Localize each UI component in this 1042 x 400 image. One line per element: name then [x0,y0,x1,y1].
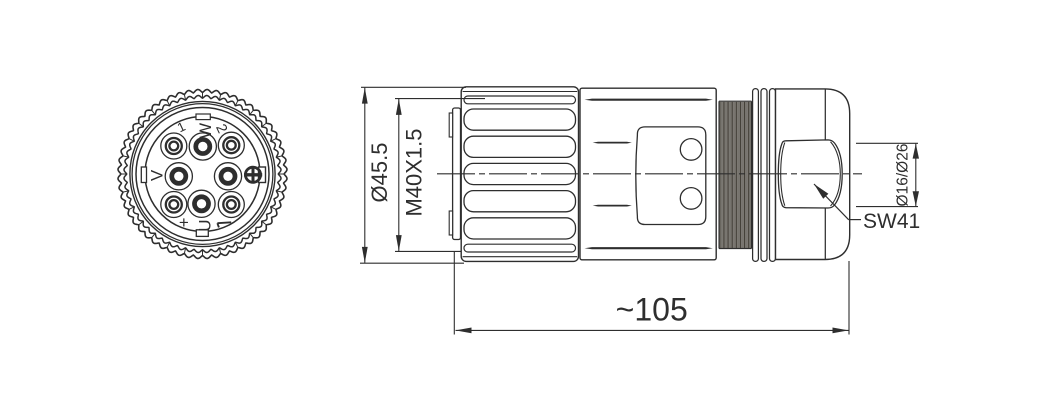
svg-text:W: W [197,122,215,138]
svg-text:+: + [179,213,189,232]
svg-text:SW41: SW41 [863,210,920,233]
svg-text:U: U [195,219,214,231]
svg-text:Ø45.5: Ø45.5 [367,143,392,203]
svg-text:V: V [147,169,166,181]
svg-text:M40X1.5: M40X1.5 [401,128,426,216]
svg-text:~105: ~105 [616,292,688,328]
svg-text:Ø16/Ø26: Ø16/Ø26 [895,144,912,207]
